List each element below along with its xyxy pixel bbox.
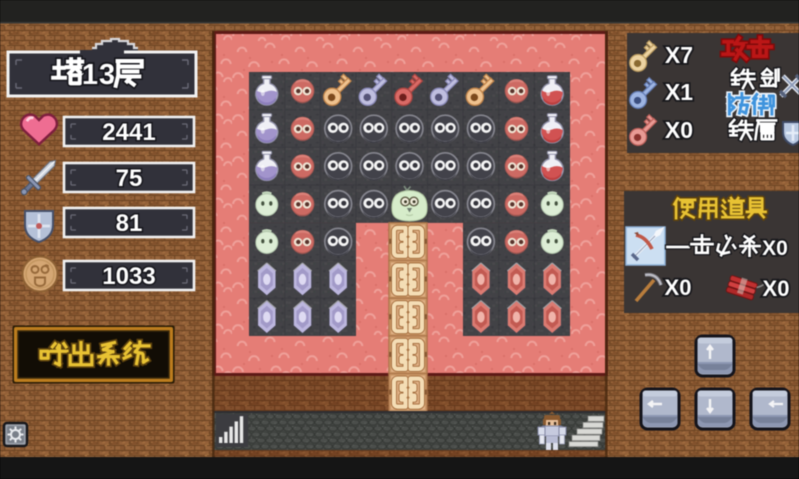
svg-text:X7: X7 [665, 42, 693, 68]
svg-text:X0: X0 [763, 276, 790, 301]
svg-text:1033: 1033 [102, 263, 155, 290]
svg-text:X0: X0 [665, 117, 693, 143]
svg-text:X1: X1 [665, 79, 693, 105]
svg-text:2441: 2441 [102, 119, 155, 146]
svg-text:X0: X0 [665, 275, 692, 300]
svg-text:75: 75 [116, 165, 143, 192]
svg-text:81: 81 [116, 210, 143, 237]
svg-text:13: 13 [82, 59, 116, 91]
svg-text:X0: X0 [762, 237, 788, 260]
